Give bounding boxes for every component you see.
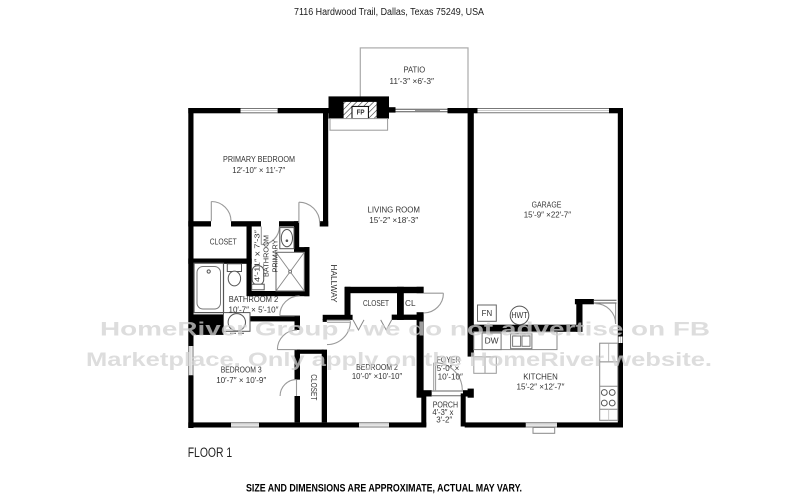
svg-text:15′-9″ ×22′-7″: 15′-9″ ×22′-7″ — [524, 210, 571, 220]
svg-text:10′-10″: 10′-10″ — [438, 371, 463, 381]
svg-text:15′-2″ ×18′-3″: 15′-2″ ×18′-3″ — [369, 215, 418, 225]
svg-text:KITCHEN: KITCHEN — [523, 372, 558, 382]
svg-text:FP: FP — [357, 108, 365, 117]
svg-text:GARAGE: GARAGE — [532, 200, 562, 210]
svg-text:3′-2″: 3′-2″ — [436, 415, 452, 425]
svg-text:11′-3″ ×6′-3″: 11′-3″ ×6′-3″ — [389, 76, 434, 86]
svg-text:CL: CL — [405, 298, 416, 308]
svg-text:12′-10″ × 11′-7″: 12′-10″ × 11′-7″ — [232, 165, 285, 175]
svg-text:LIVING ROOM: LIVING ROOM — [367, 205, 420, 215]
svg-text:4′-11″ x 7′-3″: 4′-11″ x 7′-3″ — [253, 230, 262, 282]
svg-text:HALLWAY: HALLWAY — [329, 265, 338, 304]
svg-text:PATIO: PATIO — [403, 65, 425, 75]
svg-text:FLOOR 1: FLOOR 1 — [188, 445, 233, 460]
svg-text:BATHROOM: BATHROOM — [262, 235, 271, 277]
svg-text:15′-2″ ×12′-7″: 15′-2″ ×12′-7″ — [517, 382, 565, 392]
svg-text:CLOSET: CLOSET — [309, 374, 318, 400]
svg-text:7116 Hardwood Trail, Dallas, T: 7116 Hardwood Trail, Dallas, Texas 75249… — [294, 7, 484, 18]
svg-text:FN: FN — [482, 309, 493, 318]
svg-text:CLOSET: CLOSET — [210, 237, 237, 247]
svg-text:PRIMARY: PRIMARY — [271, 240, 280, 273]
svg-text:BATHROOM 2: BATHROOM 2 — [229, 294, 279, 304]
svg-text:10′-7″ × 5′-10″: 10′-7″ × 5′-10″ — [229, 305, 279, 315]
svg-text:PRIMARY BEDROOM: PRIMARY BEDROOM — [223, 154, 295, 164]
svg-text:10′-0″ ×10′-10″: 10′-0″ ×10′-10″ — [352, 371, 402, 381]
svg-text:SIZE AND DIMENSIONS ARE APPROX: SIZE AND DIMENSIONS ARE APPROXIMATE, ACT… — [246, 482, 522, 494]
svg-text:CLOSET: CLOSET — [363, 298, 389, 308]
svg-text:Marketplace. Only apply on the: Marketplace. Only apply on the HomeRiver… — [86, 350, 712, 371]
svg-text:HomeRiver Group - we do not ad: HomeRiver Group - we do not advertise on… — [100, 320, 710, 341]
svg-text:10′-7″ × 10′-9″: 10′-7″ × 10′-9″ — [216, 375, 266, 385]
